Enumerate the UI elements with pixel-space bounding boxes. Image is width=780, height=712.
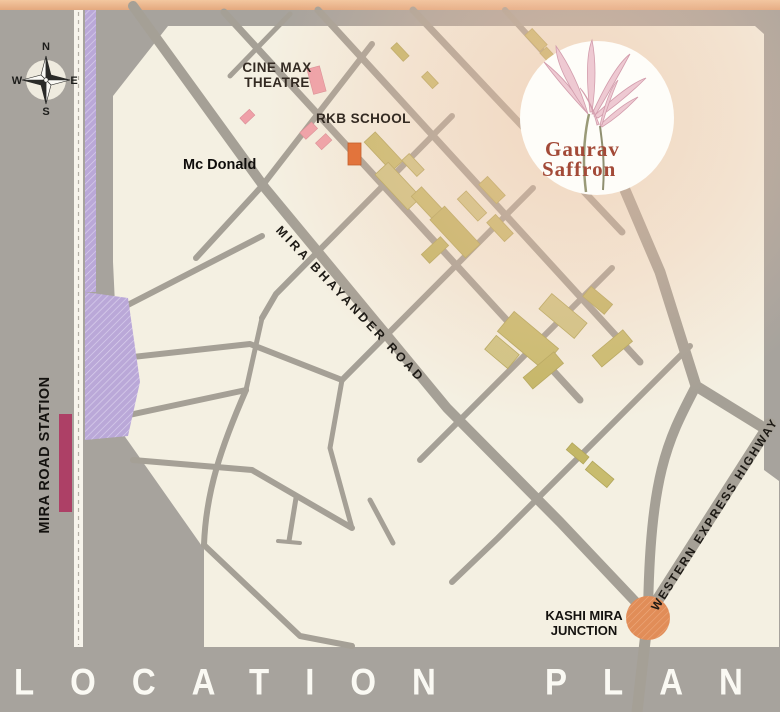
label-kashi-line1: KASHI MIRA — [524, 608, 644, 623]
logo-wordmark: Gaurav Saffron — [545, 139, 620, 179]
label-kashi-mira-junction: KASHI MIRA JUNCTION — [524, 608, 644, 638]
label-rkb-school: RKB SCHOOL — [316, 111, 411, 126]
compass-east-label: E — [70, 75, 77, 87]
compass-north-label: N — [42, 41, 50, 53]
label-cinemax-line2: THEATRE — [212, 75, 342, 90]
location-plan-page: N E S W — [0, 0, 780, 712]
location-plan-title: LOCATION PLAN — [0, 661, 780, 712]
road — [278, 541, 300, 543]
label-cinemax-theatre: CINE MAX THEATRE — [212, 60, 342, 90]
compass-west-label: W — [12, 75, 23, 87]
logo-name-line2: Saffron — [542, 159, 620, 179]
railway-line — [85, 10, 96, 292]
label-kashi-line2: JUNCTION — [524, 623, 644, 638]
label-mira-road-station: MIRA ROAD STATION — [38, 370, 56, 540]
station-platform — [59, 414, 72, 512]
site-marker — [348, 143, 361, 165]
compass-south-label: S — [42, 106, 49, 118]
label-cinemax-line1: CINE MAX — [212, 60, 342, 75]
label-mcdonald: Mc Donald — [183, 158, 256, 173]
